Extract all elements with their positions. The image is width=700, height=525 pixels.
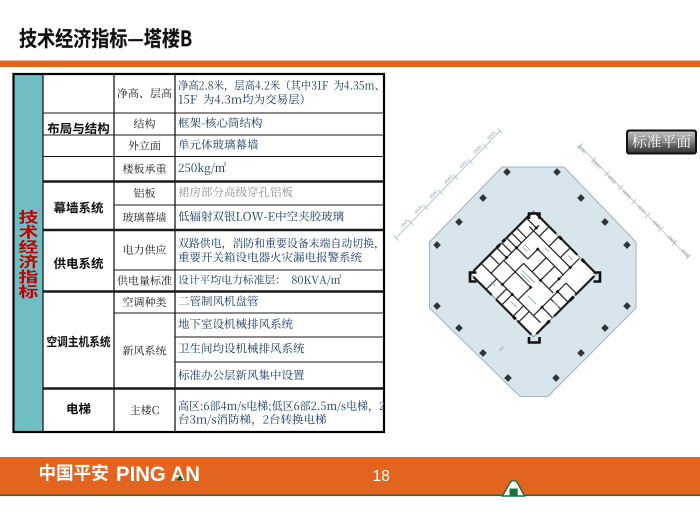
svg-text:4000: 4000 <box>606 174 617 185</box>
svg-text:2900: 2900 <box>399 218 410 229</box>
svg-text:4000: 4000 <box>413 204 424 215</box>
svg-text:18: 18 <box>373 468 390 485</box>
svg-text:PING AN: PING AN <box>116 463 200 486</box>
svg-text:8000: 8000 <box>443 174 454 185</box>
svg-text:8000: 8000 <box>576 144 587 155</box>
svg-text:8000: 8000 <box>428 189 439 200</box>
svg-text:2900: 2900 <box>666 234 677 245</box>
svg-text:2900: 2900 <box>591 159 602 170</box>
svg-text:2900: 2900 <box>472 144 483 155</box>
svg-text:8000: 8000 <box>680 248 691 259</box>
